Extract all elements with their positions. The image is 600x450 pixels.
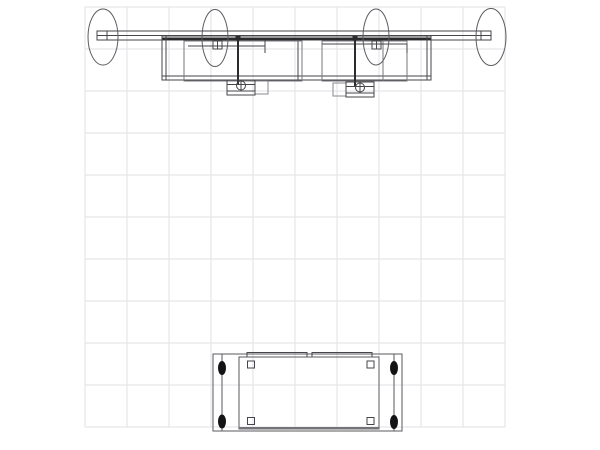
light-head-left-housing <box>255 81 268 94</box>
counter-bolt-bottom-left <box>219 415 226 428</box>
light-head-right-housing <box>333 83 346 96</box>
counter-leg-bottom-right <box>367 418 374 425</box>
counter-bolt-top-right <box>391 362 398 375</box>
counter-leg-top-right <box>367 361 374 368</box>
counter-top-panel-right <box>312 353 372 358</box>
light-ellipse-1 <box>88 9 118 65</box>
exhibit-plan-view-drawing <box>0 0 600 450</box>
stem-mount-left <box>236 36 241 41</box>
counter-top-panel-left <box>247 353 307 358</box>
counter-bolt-bottom-right <box>391 416 398 429</box>
counter-bolt-top-left <box>219 362 226 375</box>
light-ellipse-3 <box>363 9 389 65</box>
panel-left <box>184 41 302 81</box>
stem-mount-right <box>353 36 358 41</box>
panel-right <box>322 41 407 81</box>
counter-top-rect <box>239 357 379 429</box>
plan-drawing-canvas <box>0 0 600 450</box>
